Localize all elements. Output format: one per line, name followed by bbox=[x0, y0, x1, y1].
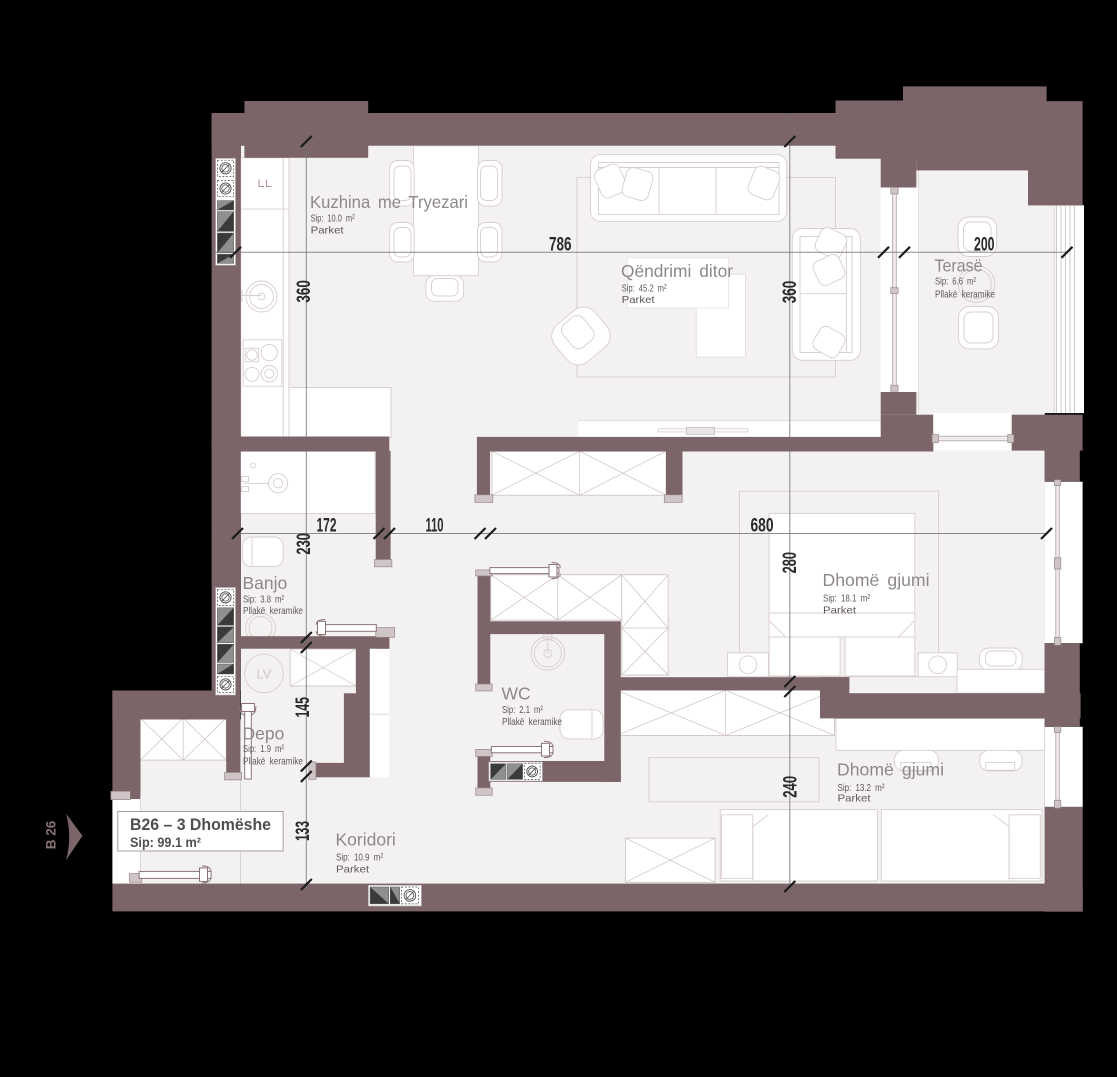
svg-text:Sip: 6.6 m²: Sip: 6.6 m² bbox=[935, 277, 976, 288]
svg-text:360: 360 bbox=[780, 281, 801, 304]
svg-text:Kuzhina me Tryezari: Kuzhina me Tryezari bbox=[310, 192, 468, 212]
svg-text:Sip: 2.1 m²: Sip: 2.1 m² bbox=[502, 705, 543, 716]
svg-text:280: 280 bbox=[780, 552, 801, 574]
svg-text:Sip: 1.9 m²: Sip: 1.9 m² bbox=[243, 744, 284, 755]
svg-text:Dhomë gjumi: Dhomë gjumi bbox=[823, 570, 930, 590]
svg-text:Pllakë keramike: Pllakë keramike bbox=[502, 717, 562, 728]
svg-text:360: 360 bbox=[294, 280, 315, 303]
svg-text:110: 110 bbox=[426, 516, 444, 537]
svg-text:Sip: 99.1 m²: Sip: 99.1 m² bbox=[130, 834, 201, 850]
svg-text:LV: LV bbox=[257, 667, 272, 682]
svg-text:Terasë: Terasë bbox=[935, 256, 983, 276]
svg-text:Parket: Parket bbox=[336, 865, 369, 876]
svg-text:Parket: Parket bbox=[823, 606, 856, 617]
svg-text:Banjo: Banjo bbox=[243, 573, 288, 593]
svg-text:Depo: Depo bbox=[243, 724, 285, 744]
svg-text:Parket: Parket bbox=[622, 295, 655, 306]
svg-text:Qëndrimi ditor: Qëndrimi ditor bbox=[621, 261, 733, 281]
svg-text:Sip: 10.9 m²: Sip: 10.9 m² bbox=[336, 853, 383, 864]
svg-text:Dhomë gjumi: Dhomë gjumi bbox=[837, 759, 944, 779]
svg-text:Koridori: Koridori bbox=[336, 830, 396, 850]
svg-text:B 26: B 26 bbox=[44, 820, 59, 849]
svg-text:172: 172 bbox=[317, 516, 337, 537]
svg-text:WC: WC bbox=[502, 684, 531, 704]
svg-text:B26 – 3 Dhomëshe: B26 – 3 Dhomëshe bbox=[130, 816, 271, 834]
svg-text:200: 200 bbox=[974, 235, 995, 256]
svg-text:Pllakë keramike: Pllakë keramike bbox=[243, 757, 303, 768]
svg-text:145: 145 bbox=[293, 697, 314, 718]
svg-text:Sip: 3.8 m²: Sip: 3.8 m² bbox=[243, 595, 284, 606]
svg-text:786: 786 bbox=[549, 235, 572, 256]
svg-text:Parket: Parket bbox=[838, 794, 871, 805]
svg-text:230: 230 bbox=[294, 533, 315, 555]
svg-text:Sip: 45.2 m²: Sip: 45.2 m² bbox=[622, 284, 667, 295]
svg-text:133: 133 bbox=[293, 821, 314, 841]
svg-text:Sip: 10.0 m²: Sip: 10.0 m² bbox=[311, 214, 355, 225]
svg-text:Pllakë keramike: Pllakë keramike bbox=[935, 289, 995, 300]
svg-text:240: 240 bbox=[781, 776, 802, 798]
svg-text:Parket: Parket bbox=[311, 225, 344, 236]
svg-text:Sip: 13.2 m²: Sip: 13.2 m² bbox=[838, 783, 885, 794]
svg-text:Sip: 18.1 m²: Sip: 18.1 m² bbox=[823, 594, 870, 605]
svg-text:Pllakë keramike: Pllakë keramike bbox=[243, 606, 303, 617]
svg-text:680: 680 bbox=[751, 516, 774, 537]
